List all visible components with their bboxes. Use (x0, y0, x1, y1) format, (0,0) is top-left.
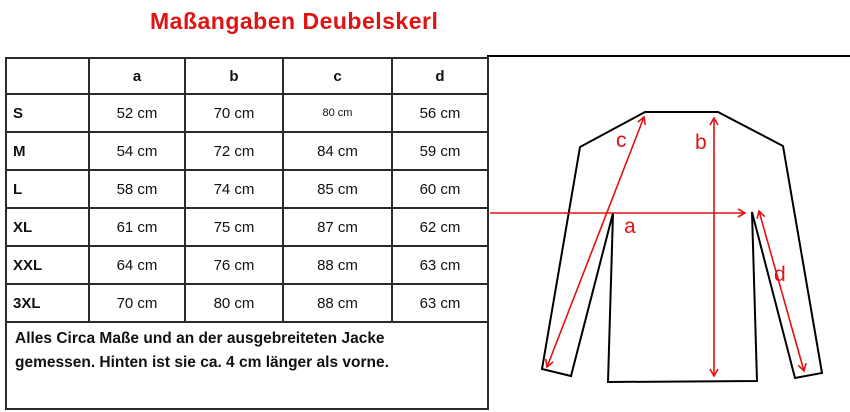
value-cell: 87 cm (283, 208, 392, 246)
value-cell: 60 cm (392, 170, 488, 208)
size-label: XL (6, 208, 89, 246)
size-table: a b c d S 52 cm 70 cm 80 cm 56 cm M 54 c… (5, 57, 489, 410)
value-cell: 85 cm (283, 170, 392, 208)
table-header-row: a b c d (6, 58, 488, 94)
value-cell: 76 cm (185, 246, 283, 284)
size-label: S (6, 94, 89, 132)
measure-label-a: a (624, 215, 636, 238)
value-cell: 56 cm (392, 94, 488, 132)
value-cell: 63 cm (392, 246, 488, 284)
page-title: Maßangaben Deubelskerl (150, 8, 450, 35)
value-cell: 52 cm (89, 94, 185, 132)
note-row: Alles Circa Maße und an der ausgebreitet… (6, 322, 488, 409)
value-cell: 54 cm (89, 132, 185, 170)
jacket-diagram: c b a d (490, 50, 850, 412)
value-cell: 64 cm (89, 246, 185, 284)
measurement-note: Alles Circa Maße und an der ausgebreitet… (15, 327, 463, 375)
value-cell: 70 cm (185, 94, 283, 132)
value-cell: 88 cm (283, 246, 392, 284)
measure-label-b: b (695, 131, 707, 154)
value-cell: 74 cm (185, 170, 283, 208)
measure-label-d: d (774, 263, 786, 286)
table-row: M 54 cm 72 cm 84 cm 59 cm (6, 132, 488, 170)
table-row: XXL 64 cm 76 cm 88 cm 63 cm (6, 246, 488, 284)
size-label: L (6, 170, 89, 208)
size-label: 3XL (6, 284, 89, 322)
size-label: M (6, 132, 89, 170)
table-row: L 58 cm 74 cm 85 cm 60 cm (6, 170, 488, 208)
measurement-sheet: Maßangaben Deubelskerl a b c d S 52 cm 7… (0, 0, 850, 412)
table-row: S 52 cm 70 cm 80 cm 56 cm (6, 94, 488, 132)
corner-cell (6, 58, 89, 94)
value-cell: 80 cm (185, 284, 283, 322)
measure-label-c: c (616, 129, 627, 152)
table-row: 3XL 70 cm 80 cm 88 cm 63 cm (6, 284, 488, 322)
value-cell: 58 cm (89, 170, 185, 208)
value-cell: 75 cm (185, 208, 283, 246)
column-header-b: b (185, 58, 283, 94)
value-cell: 62 cm (392, 208, 488, 246)
note-cell: Alles Circa Maße und an der ausgebreitet… (6, 322, 488, 409)
column-header-d: d (392, 58, 488, 94)
column-header-c: c (283, 58, 392, 94)
value-cell: 59 cm (392, 132, 488, 170)
value-cell: 88 cm (283, 284, 392, 322)
table-row: XL 61 cm 75 cm 87 cm 62 cm (6, 208, 488, 246)
column-header-a: a (89, 58, 185, 94)
size-label: XXL (6, 246, 89, 284)
value-cell: 72 cm (185, 132, 283, 170)
value-cell: 70 cm (89, 284, 185, 322)
value-cell: 63 cm (392, 284, 488, 322)
value-cell: 80 cm (283, 94, 392, 132)
value-cell: 61 cm (89, 208, 185, 246)
jacket-outline (542, 112, 822, 382)
value-cell: 84 cm (283, 132, 392, 170)
